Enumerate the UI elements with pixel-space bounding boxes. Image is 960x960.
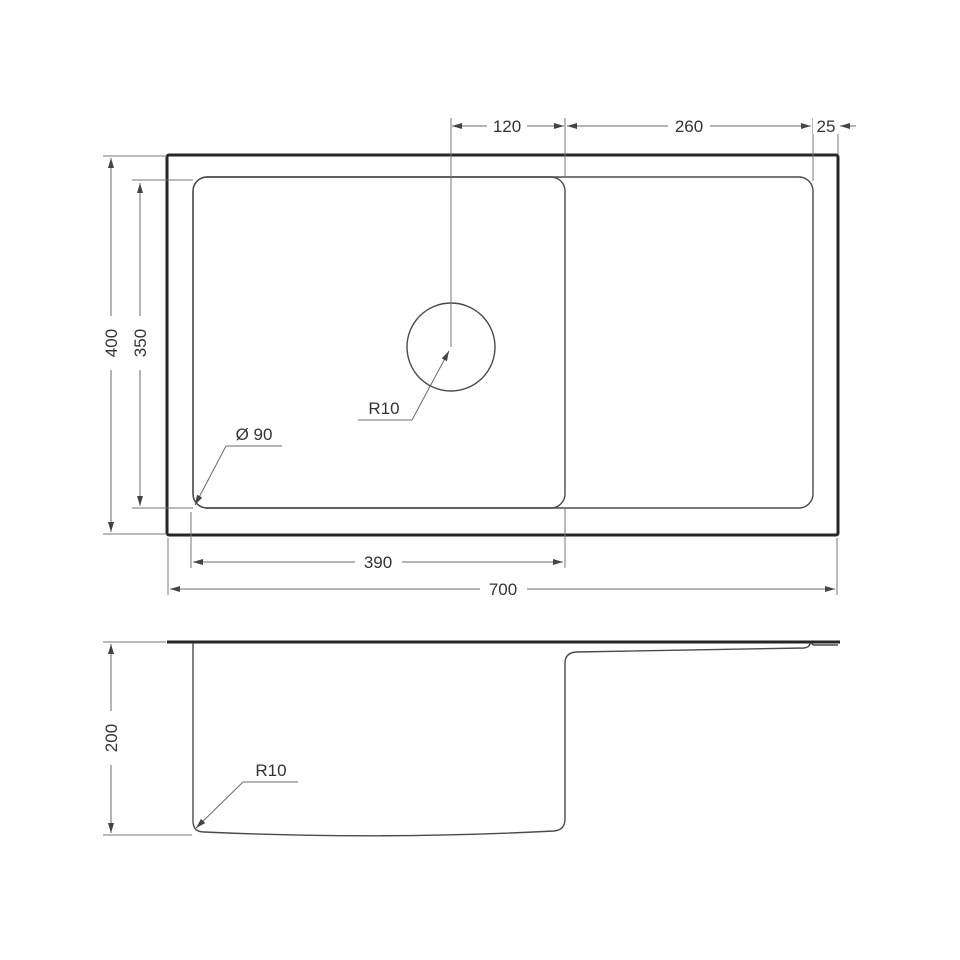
leader-dia90-line xyxy=(195,446,226,505)
inner-opening-outline xyxy=(193,177,813,508)
dim-label-25: 25 xyxy=(817,117,836,136)
dimension-side: 200 R10 xyxy=(102,642,298,835)
dim-label-700: 700 xyxy=(489,580,517,599)
bowl-outline xyxy=(193,177,565,508)
dim-label-200: 200 xyxy=(102,724,121,752)
outer-rim-outline xyxy=(167,155,838,535)
label-r10-side: R10 xyxy=(255,761,286,780)
top-view-leaders: R10 Ø 90 xyxy=(195,351,449,505)
label-r10-top: R10 xyxy=(368,399,399,418)
label-drain-diameter: Ø 90 xyxy=(236,425,273,444)
dim-label-120: 120 xyxy=(493,117,521,136)
dimension-top-row: 120 260 25 xyxy=(452,117,856,568)
dim-label-260: 260 xyxy=(675,117,703,136)
side-profile-outline xyxy=(193,643,838,836)
dim-label-400: 400 xyxy=(102,329,121,357)
dimension-left-column: 400 350 xyxy=(102,156,193,534)
dimension-bottom-rows: 390 700 xyxy=(168,512,837,599)
sink-technical-drawing: 120 260 25 400 350 390 700 xyxy=(0,0,960,960)
leader-r10-line xyxy=(412,351,449,420)
drawing-canvas: 120 260 25 400 350 390 700 xyxy=(0,0,960,960)
leader-r10-side-line xyxy=(196,782,243,828)
side-view xyxy=(167,642,840,836)
top-view xyxy=(167,118,838,535)
dim-label-390: 390 xyxy=(364,553,392,572)
dim-label-350: 350 xyxy=(131,329,150,357)
